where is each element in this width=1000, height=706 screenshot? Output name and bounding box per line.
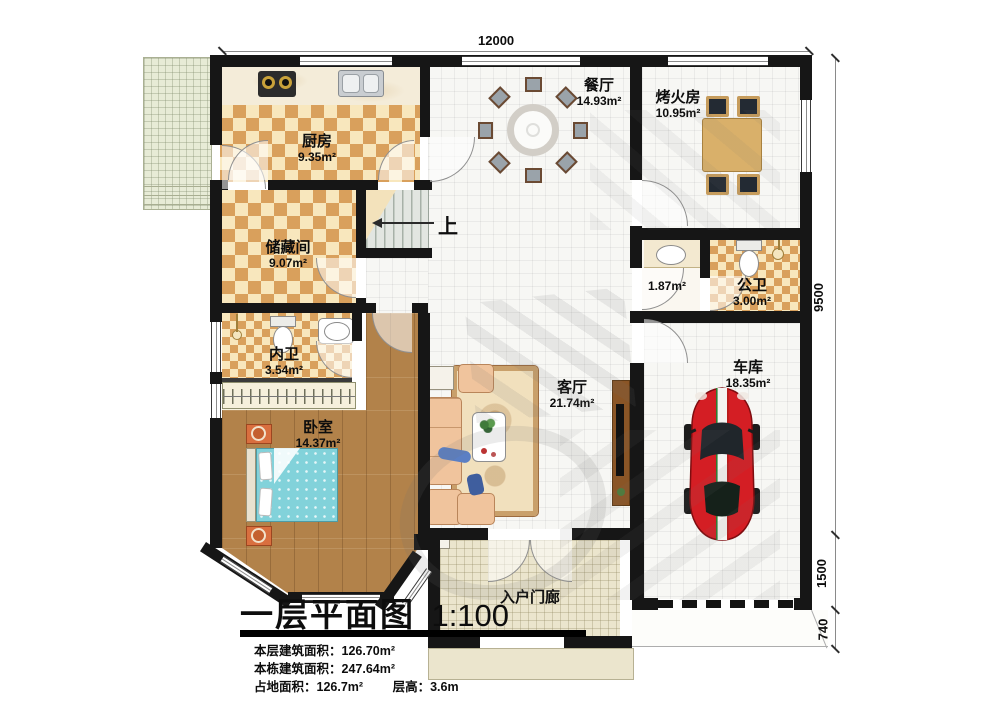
- wall: [268, 180, 378, 190]
- dim-line-top: [222, 51, 810, 52]
- shower-hose: [236, 314, 238, 332]
- side-patio-steps: [143, 178, 210, 208]
- wall: [630, 363, 644, 600]
- armchair: [457, 493, 495, 525]
- plan-title: 一层平面图: [240, 596, 415, 633]
- wall: [210, 303, 376, 313]
- window: [462, 56, 580, 66]
- stove-burner-icon: [262, 76, 275, 89]
- plant-icon: [617, 488, 625, 496]
- wall: [800, 55, 812, 100]
- title-block: 一层平面图 1:100: [240, 588, 509, 636]
- wall: [210, 55, 222, 145]
- fire-room-chair: [706, 174, 729, 195]
- stats-block: 本层建筑面积：126.70m² 本栋建筑面积：247.64m² 占地面积：126…: [254, 642, 459, 696]
- garage-label: 车库 18.35m²: [726, 360, 771, 390]
- stairs-arrowhead-icon: [372, 218, 382, 228]
- dining-label: 餐厅 14.93m²: [577, 78, 622, 108]
- wall: [210, 418, 222, 548]
- kitchen-label: 厨房 9.35m²: [298, 134, 336, 164]
- wall: [356, 248, 432, 258]
- dim-house-depth: 9500: [811, 283, 826, 312]
- driveway: [632, 610, 828, 647]
- fire-room-label: 烤火房 10.95m²: [655, 90, 700, 120]
- plan-scale: 1:100: [431, 598, 509, 633]
- wall: [630, 228, 812, 240]
- wall: [414, 534, 432, 550]
- pillow: [258, 452, 273, 481]
- wall-thin: [222, 378, 352, 382]
- toilet-icon: [739, 250, 759, 277]
- dining-chair: [525, 77, 542, 92]
- stat-land-area-and-height: 占地面积：126.7m² 层高：3.6m: [254, 678, 459, 696]
- stairs-arrow: [380, 222, 434, 224]
- stairs-up-label: 上: [438, 210, 458, 239]
- lamp-icon: [251, 528, 266, 543]
- stove-burner-icon: [279, 76, 292, 89]
- vanity-sink: [656, 245, 686, 265]
- bed-headboard: [246, 448, 256, 522]
- sink-basin: [363, 74, 379, 93]
- window: [211, 384, 221, 418]
- garage-door-dashed: [658, 600, 794, 608]
- dining-chair: [525, 168, 542, 183]
- dining-table-center: [526, 123, 540, 137]
- dining-chair: [478, 122, 493, 139]
- dim-steps-depth: 740: [815, 619, 830, 641]
- wall: [794, 598, 812, 610]
- corner-table: [428, 366, 454, 390]
- lamp-icon: [251, 426, 266, 441]
- fire-room-table: [702, 118, 762, 172]
- fire-room-chair: [737, 96, 760, 117]
- bedroom-label: 卧室 14.37m²: [296, 420, 341, 450]
- porch-steps: [428, 648, 634, 680]
- wall: [572, 528, 632, 540]
- bath-sink-basin: [324, 322, 350, 341]
- stat-floor-area: 本层建筑面积：126.70m²: [254, 642, 459, 660]
- blanket-fold: [274, 448, 300, 484]
- private-bath-label: 内卫 3.54m²: [265, 347, 303, 377]
- fire-room-chair: [706, 96, 729, 117]
- wall: [412, 303, 428, 313]
- decor-dot: [481, 448, 487, 454]
- stairs-break: [366, 190, 396, 240]
- sofa: [426, 397, 462, 485]
- title-underline: [240, 630, 586, 637]
- dim-line-right: [835, 58, 836, 650]
- wall: [642, 311, 812, 323]
- plant-icon: [478, 418, 496, 433]
- wall: [700, 240, 710, 278]
- dining-chair: [573, 122, 588, 139]
- fire-room-chair: [737, 174, 760, 195]
- car: [682, 386, 762, 544]
- stat-building-area: 本栋建筑面积：247.64m²: [254, 660, 459, 678]
- wall: [210, 372, 222, 384]
- armchair: [458, 364, 494, 393]
- wall: [352, 313, 362, 341]
- hallway-label: 1.87m²: [648, 280, 686, 293]
- wardrobe: [222, 382, 356, 409]
- wall: [420, 55, 430, 137]
- dim-porch-depth: 1500: [814, 559, 829, 588]
- window: [211, 322, 221, 372]
- window: [300, 56, 392, 66]
- wall: [564, 636, 632, 648]
- dim-top-width: 12000: [478, 33, 514, 48]
- window: [801, 100, 811, 172]
- decor-dot: [491, 452, 496, 457]
- pillow: [258, 488, 273, 517]
- kitchen-counter: [220, 65, 420, 106]
- wall: [356, 190, 366, 248]
- floor-plan: 上: [0, 0, 1000, 706]
- wall: [418, 313, 430, 548]
- wall: [630, 65, 642, 180]
- window: [668, 56, 768, 66]
- living-label: 客厅 21.74m²: [550, 380, 595, 410]
- driveway-edge: [632, 646, 828, 647]
- public-bath-label: 公卫 3.00m²: [733, 278, 771, 308]
- tv-icon: [616, 404, 624, 476]
- sink-basin: [342, 74, 360, 93]
- storage-label: 储藏间 9.07m²: [265, 240, 310, 270]
